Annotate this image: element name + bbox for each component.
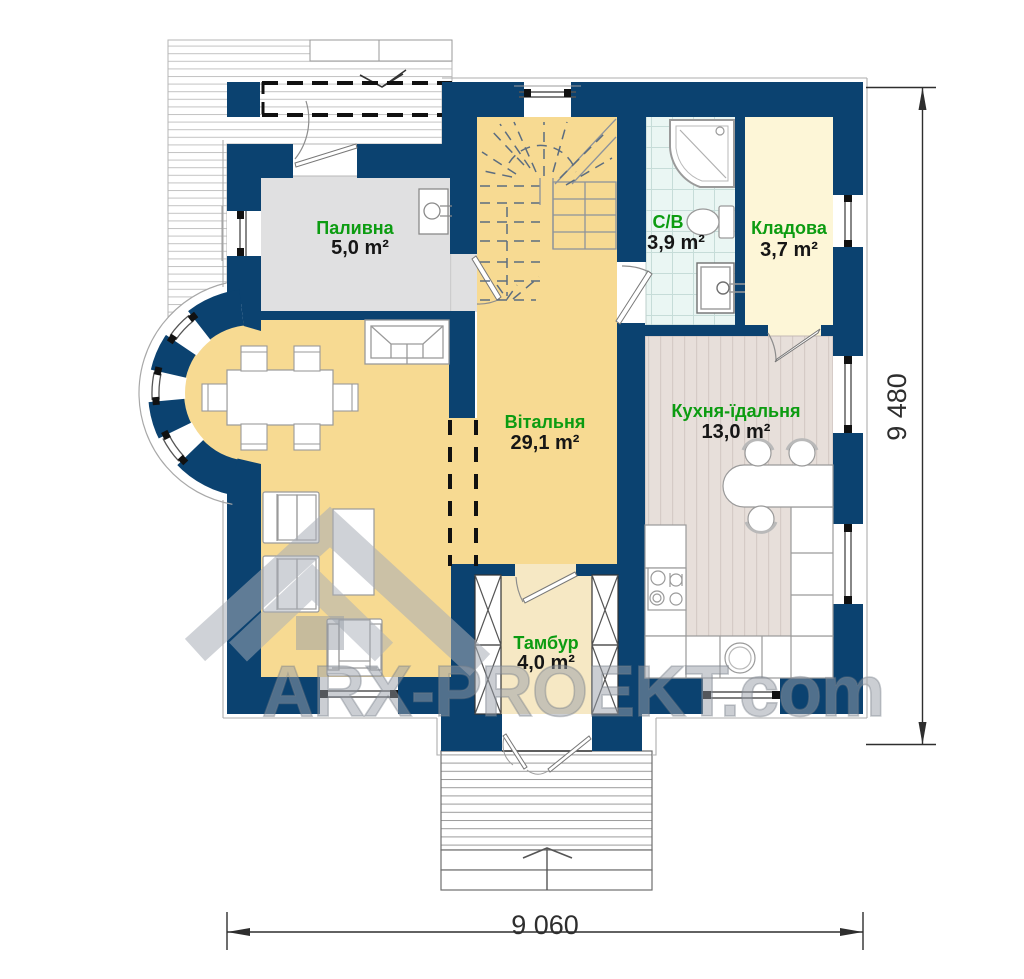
svg-text:9 060: 9 060 (511, 910, 579, 940)
svg-text:Паливна: Паливна (316, 218, 394, 238)
svg-text:9 480: 9 480 (882, 373, 912, 441)
svg-text:ARX-PROEKT.com: ARX-PROEKT.com (262, 652, 884, 732)
svg-text:29,1 m²: 29,1 m² (511, 432, 580, 454)
svg-text:5,0 m²: 5,0 m² (331, 237, 389, 259)
svg-text:С/В: С/В (653, 212, 684, 232)
svg-text:Кухня-їдальня: Кухня-їдальня (672, 401, 801, 421)
svg-text:Тамбур: Тамбур (513, 633, 578, 653)
svg-text:Вітальня: Вітальня (505, 412, 586, 432)
svg-text:3,7 m²: 3,7 m² (760, 239, 818, 261)
svg-text:13,0 m²: 13,0 m² (702, 421, 771, 443)
svg-text:Кладова: Кладова (751, 218, 828, 238)
svg-text:3,9 m²: 3,9 m² (647, 232, 705, 254)
